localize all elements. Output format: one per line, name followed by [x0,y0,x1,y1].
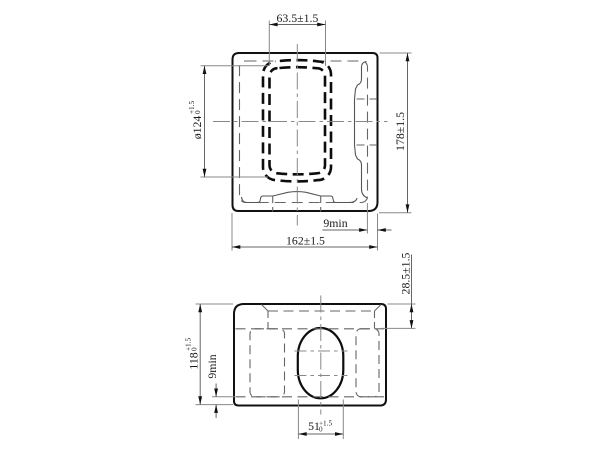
svg-text:28.5±1.5: 28.5±1.5 [398,252,412,294]
svg-text:0: 0 [194,110,202,114]
svg-text:162±1.5: 162±1.5 [286,234,325,248]
svg-text:9min: 9min [323,216,347,230]
svg-text:ø124: ø124 [190,116,204,140]
svg-text:63.5±1.5: 63.5±1.5 [276,11,318,25]
svg-text:178±1.5: 178±1.5 [393,112,407,151]
svg-text:9min: 9min [205,354,219,378]
svg-text:0: 0 [191,347,199,351]
svg-text:0: 0 [319,426,323,434]
svg-text:118: 118 [187,352,201,369]
